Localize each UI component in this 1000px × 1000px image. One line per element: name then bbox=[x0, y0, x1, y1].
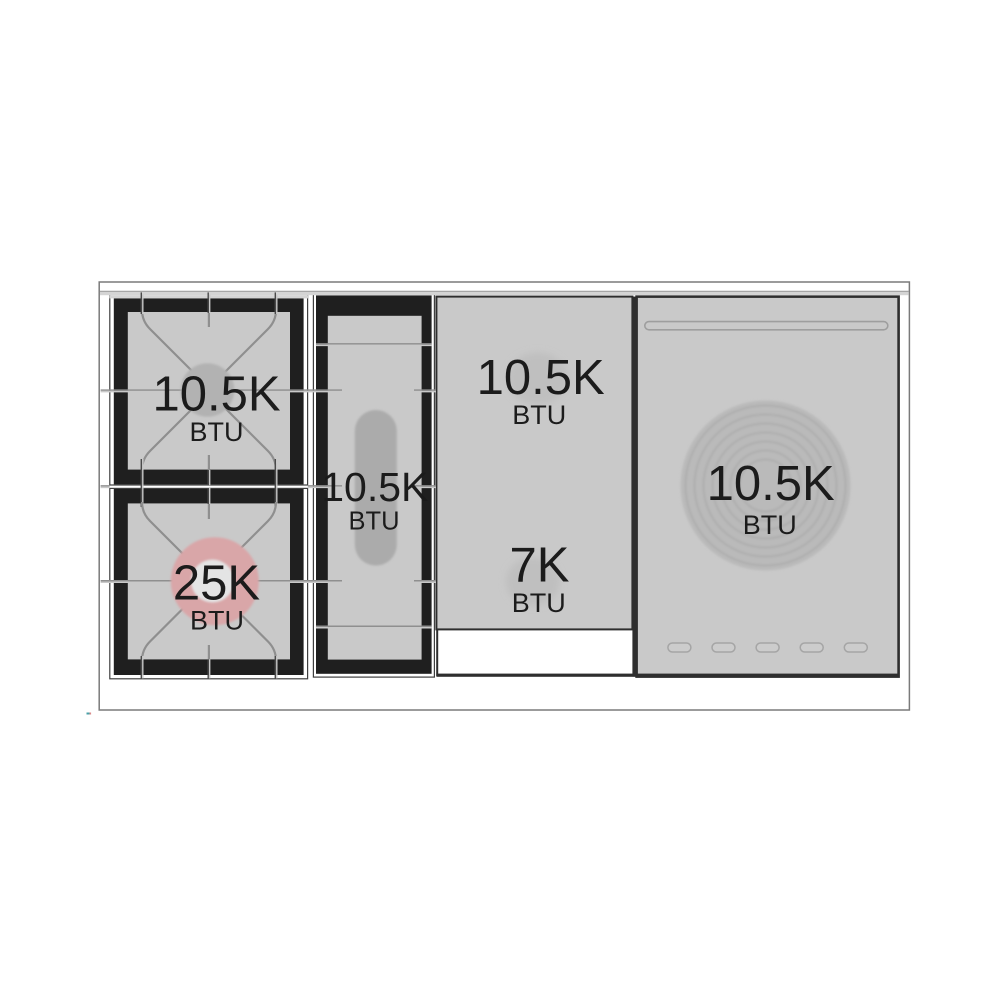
svg-text:25K: 25K bbox=[173, 557, 261, 611]
svg-text:BTU: BTU bbox=[190, 606, 244, 636]
svg-text:BTU: BTU bbox=[349, 507, 400, 535]
svg-text:10.5K: 10.5K bbox=[321, 464, 428, 510]
svg-text:BTU: BTU bbox=[512, 588, 566, 618]
svg-text:BTU: BTU bbox=[743, 510, 797, 540]
svg-text:10.5K: 10.5K bbox=[477, 351, 605, 405]
svg-text:10.5K: 10.5K bbox=[707, 457, 835, 511]
svg-text:BTU: BTU bbox=[512, 400, 566, 430]
svg-text:BTU: BTU bbox=[190, 417, 244, 447]
svg-text:7K: 7K bbox=[510, 539, 570, 593]
svg-text:10.5K: 10.5K bbox=[152, 368, 280, 422]
